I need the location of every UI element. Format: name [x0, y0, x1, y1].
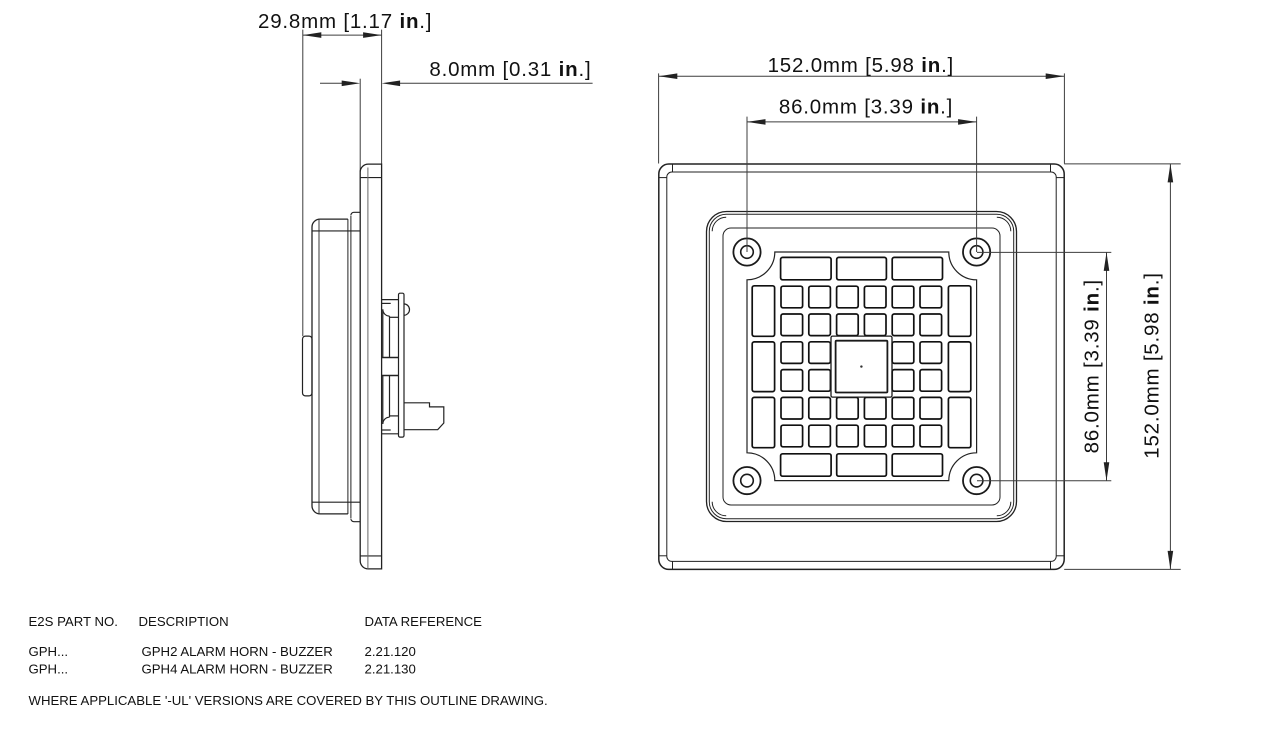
svg-text:86.0mm [3.39 in.]: 86.0mm [3.39 in.]: [1081, 279, 1104, 453]
svg-text:GPH4 ALARM HORN - BUZZER: GPH4 ALARM HORN - BUZZER: [142, 662, 333, 677]
svg-text:86.0mm [3.39 in.]: 86.0mm [3.39 in.]: [779, 95, 953, 118]
svg-text:DESCRIPTION: DESCRIPTION: [139, 614, 229, 629]
svg-text:29.8mm [1.17 in.]: 29.8mm [1.17 in.]: [258, 10, 432, 33]
svg-text:2.21.130: 2.21.130: [365, 662, 416, 677]
svg-text:152.0mm [5.98 in.]: 152.0mm [5.98 in.]: [1141, 272, 1164, 458]
svg-text:DATA REFERENCE: DATA REFERENCE: [365, 614, 483, 629]
svg-text:WHERE APPLICABLE '-UL' VERSION: WHERE APPLICABLE '-UL' VERSIONS ARE COVE…: [29, 693, 548, 708]
svg-text:GPH...: GPH...: [29, 644, 69, 659]
svg-text:8.0mm [0.31 in.]: 8.0mm [0.31 in.]: [429, 58, 591, 81]
svg-text:E2S PART NO.: E2S PART NO.: [29, 614, 118, 629]
svg-text:GPH...: GPH...: [29, 662, 69, 677]
svg-text:GPH2 ALARM HORN - BUZZER: GPH2 ALARM HORN - BUZZER: [142, 644, 333, 659]
svg-text:152.0mm [5.98 in.]: 152.0mm [5.98 in.]: [768, 54, 954, 77]
svg-text:2.21.120: 2.21.120: [365, 644, 416, 659]
